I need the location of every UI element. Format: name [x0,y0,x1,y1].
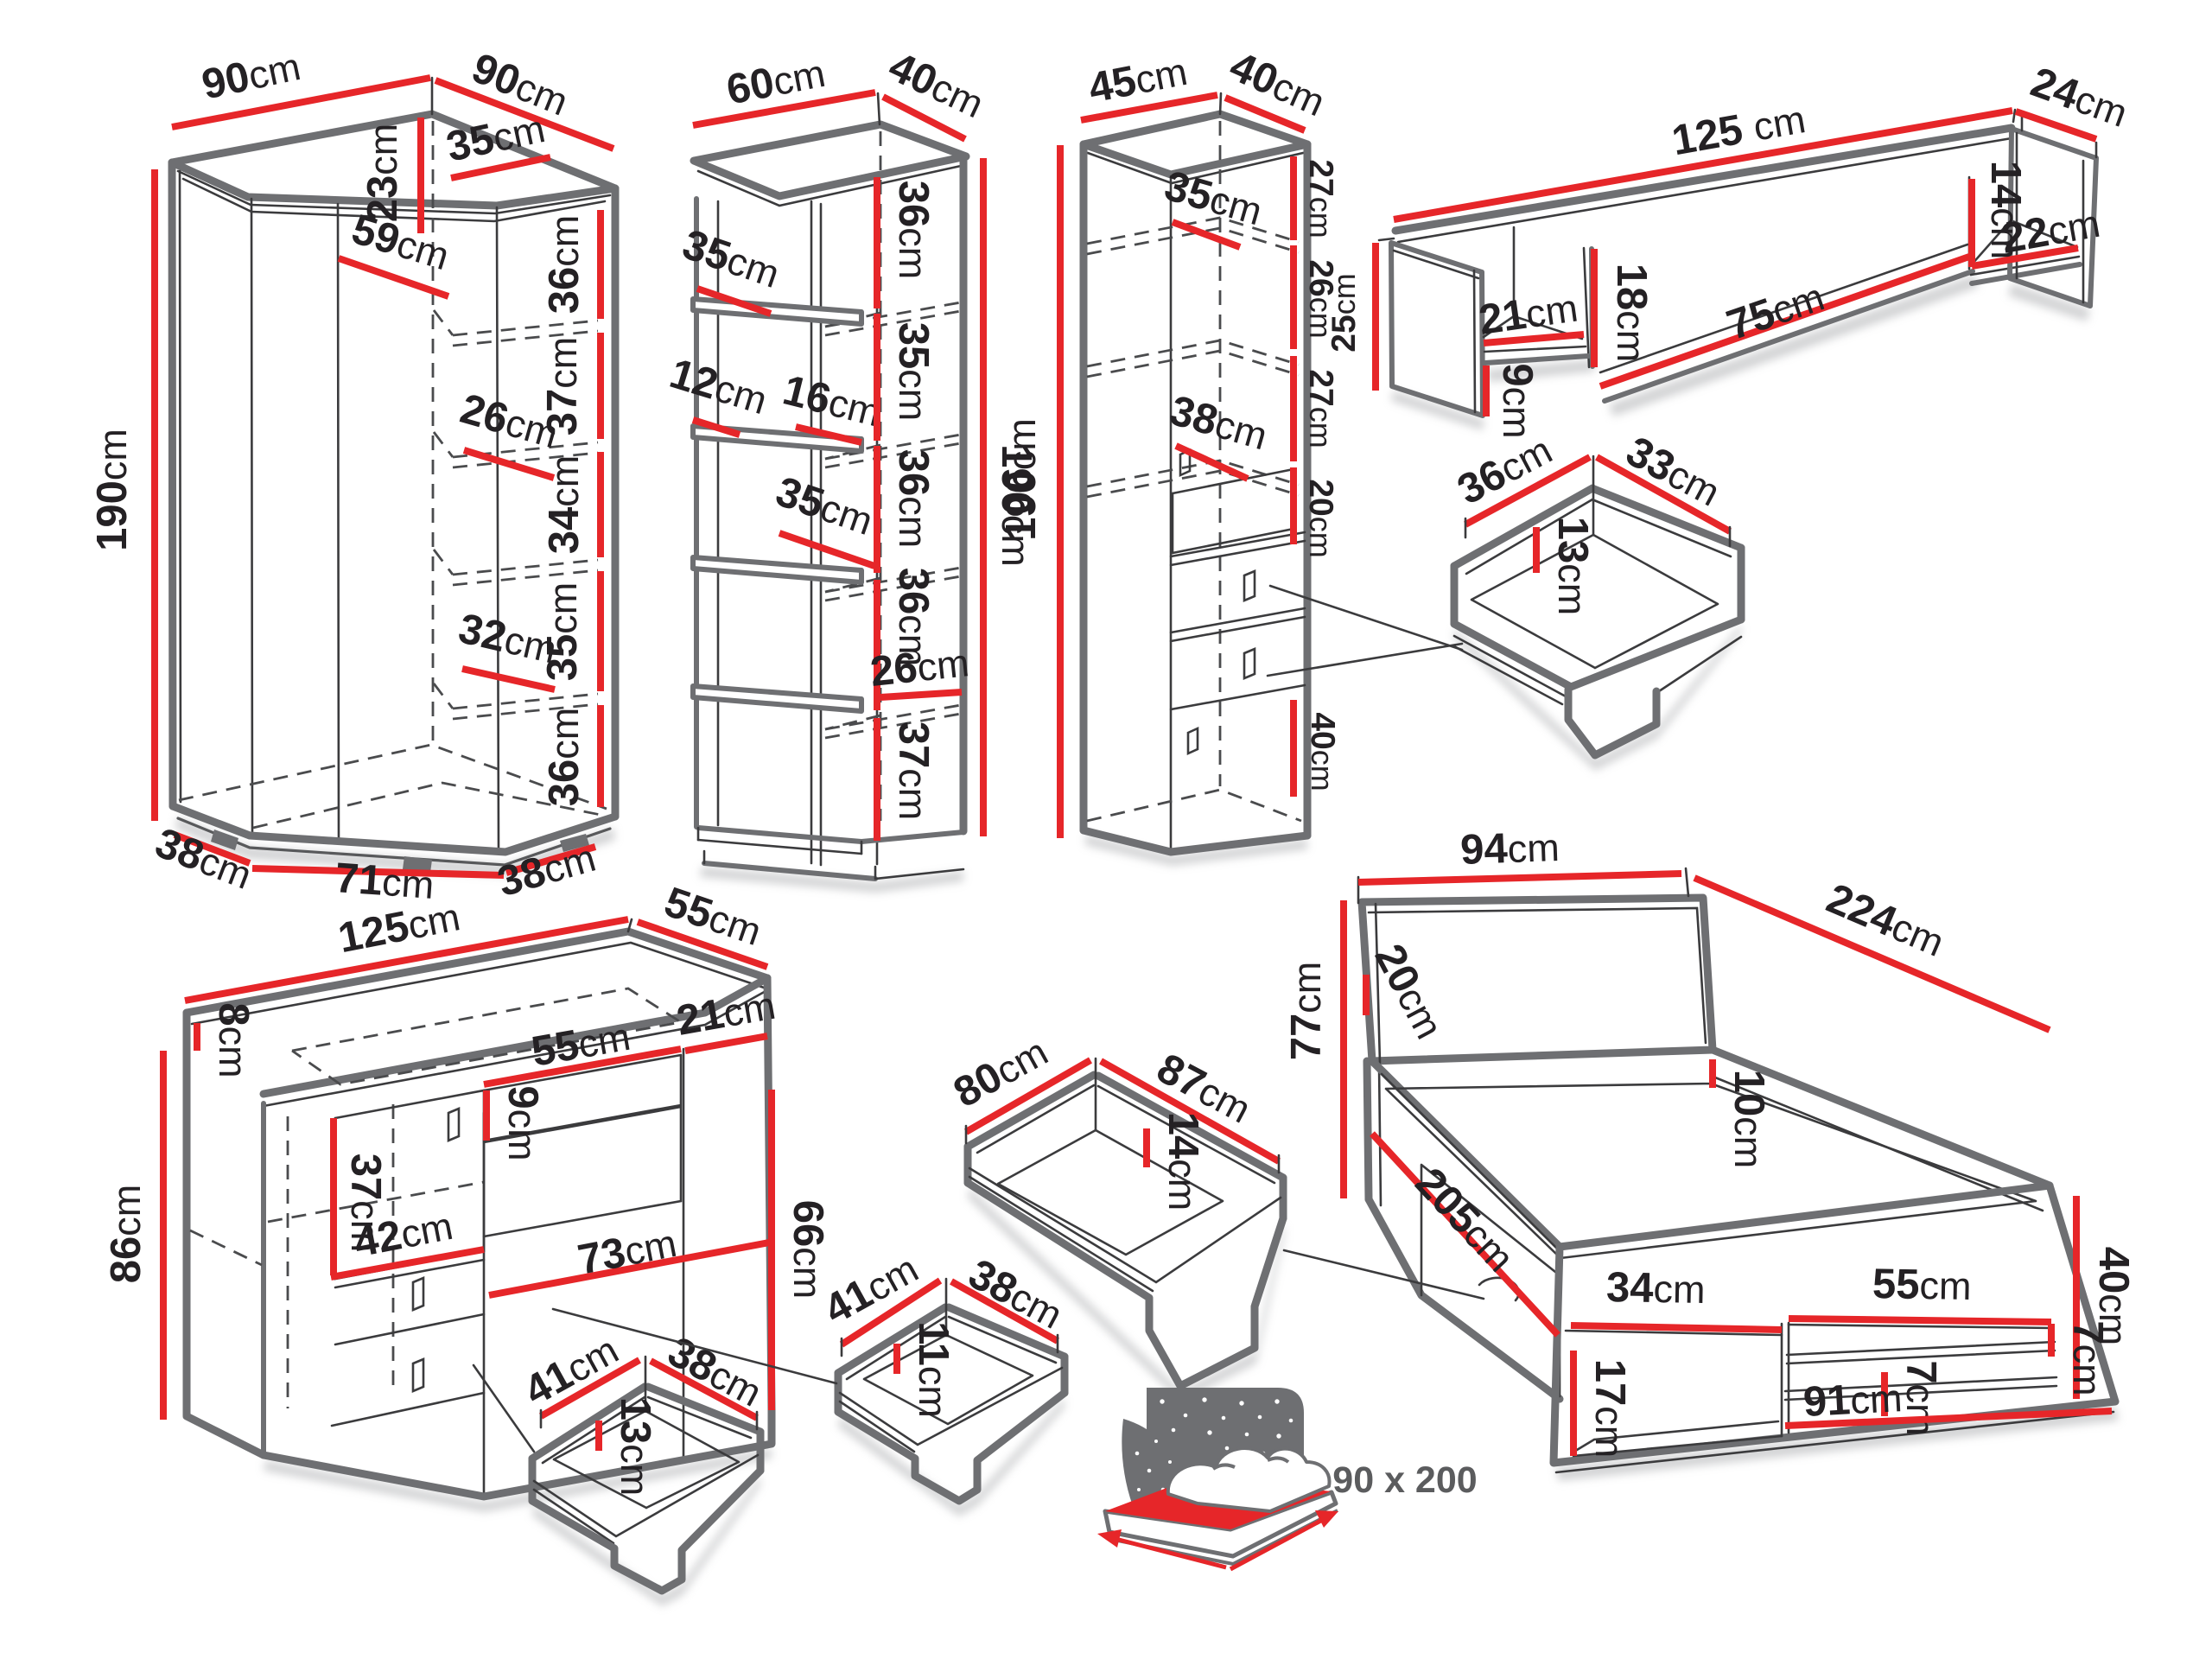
svg-text:40cm: 40cm [1304,712,1341,791]
svg-text:71cm: 71cm [334,855,435,908]
svg-text:77cm: 77cm [1283,962,1330,1061]
svg-text:36cm: 36cm [890,181,937,280]
svg-text:14cm: 14cm [1982,161,2029,260]
svg-text:11cm: 11cm [910,1321,957,1418]
svg-text:18cm: 18cm [1608,264,1655,363]
svg-text:190cm: 190cm [89,429,136,551]
svg-text:13cm: 13cm [1549,517,1596,616]
svg-text:14cm: 14cm [1160,1112,1206,1211]
svg-text:36cm: 36cm [890,449,937,549]
svg-text:20cm: 20cm [1302,479,1339,557]
svg-text:9cm: 9cm [1494,363,1541,438]
svg-text:66cm: 66cm [785,1200,831,1300]
svg-text:25cm: 25cm [1325,273,1363,352]
svg-text:35cm: 35cm [539,582,586,682]
svg-text:7cm: 7cm [2064,1320,2111,1395]
svg-text:27cm: 27cm [1302,369,1339,448]
svg-text:7cm: 7cm [1897,1360,1944,1435]
svg-text:55cm: 55cm [1872,1261,1972,1309]
svg-text:91cm: 91cm [1802,1374,1904,1426]
svg-text:37cm: 37cm [890,721,937,821]
svg-text:90 x 200: 90 x 200 [1332,1459,1477,1501]
svg-text:86cm: 86cm [103,1185,149,1284]
svg-text:34cm: 34cm [1606,1264,1706,1313]
svg-text:36cm: 36cm [541,215,588,315]
svg-text:34cm: 34cm [541,455,588,555]
svg-text:13cm: 13cm [612,1397,658,1497]
svg-text:27cm: 27cm [1302,159,1339,238]
svg-text:190cm: 190cm [998,418,1045,541]
svg-text:9cm: 9cm [499,1085,546,1160]
svg-text:10cm: 10cm [1726,1070,1772,1169]
svg-text:35cm: 35cm [890,322,937,422]
svg-text:94cm: 94cm [1459,823,1560,874]
svg-text:8cm: 8cm [210,1002,257,1077]
svg-text:37cm: 37cm [539,337,586,436]
svg-text:17cm: 17cm [1586,1359,1633,1459]
svg-text:36cm: 36cm [541,708,588,807]
